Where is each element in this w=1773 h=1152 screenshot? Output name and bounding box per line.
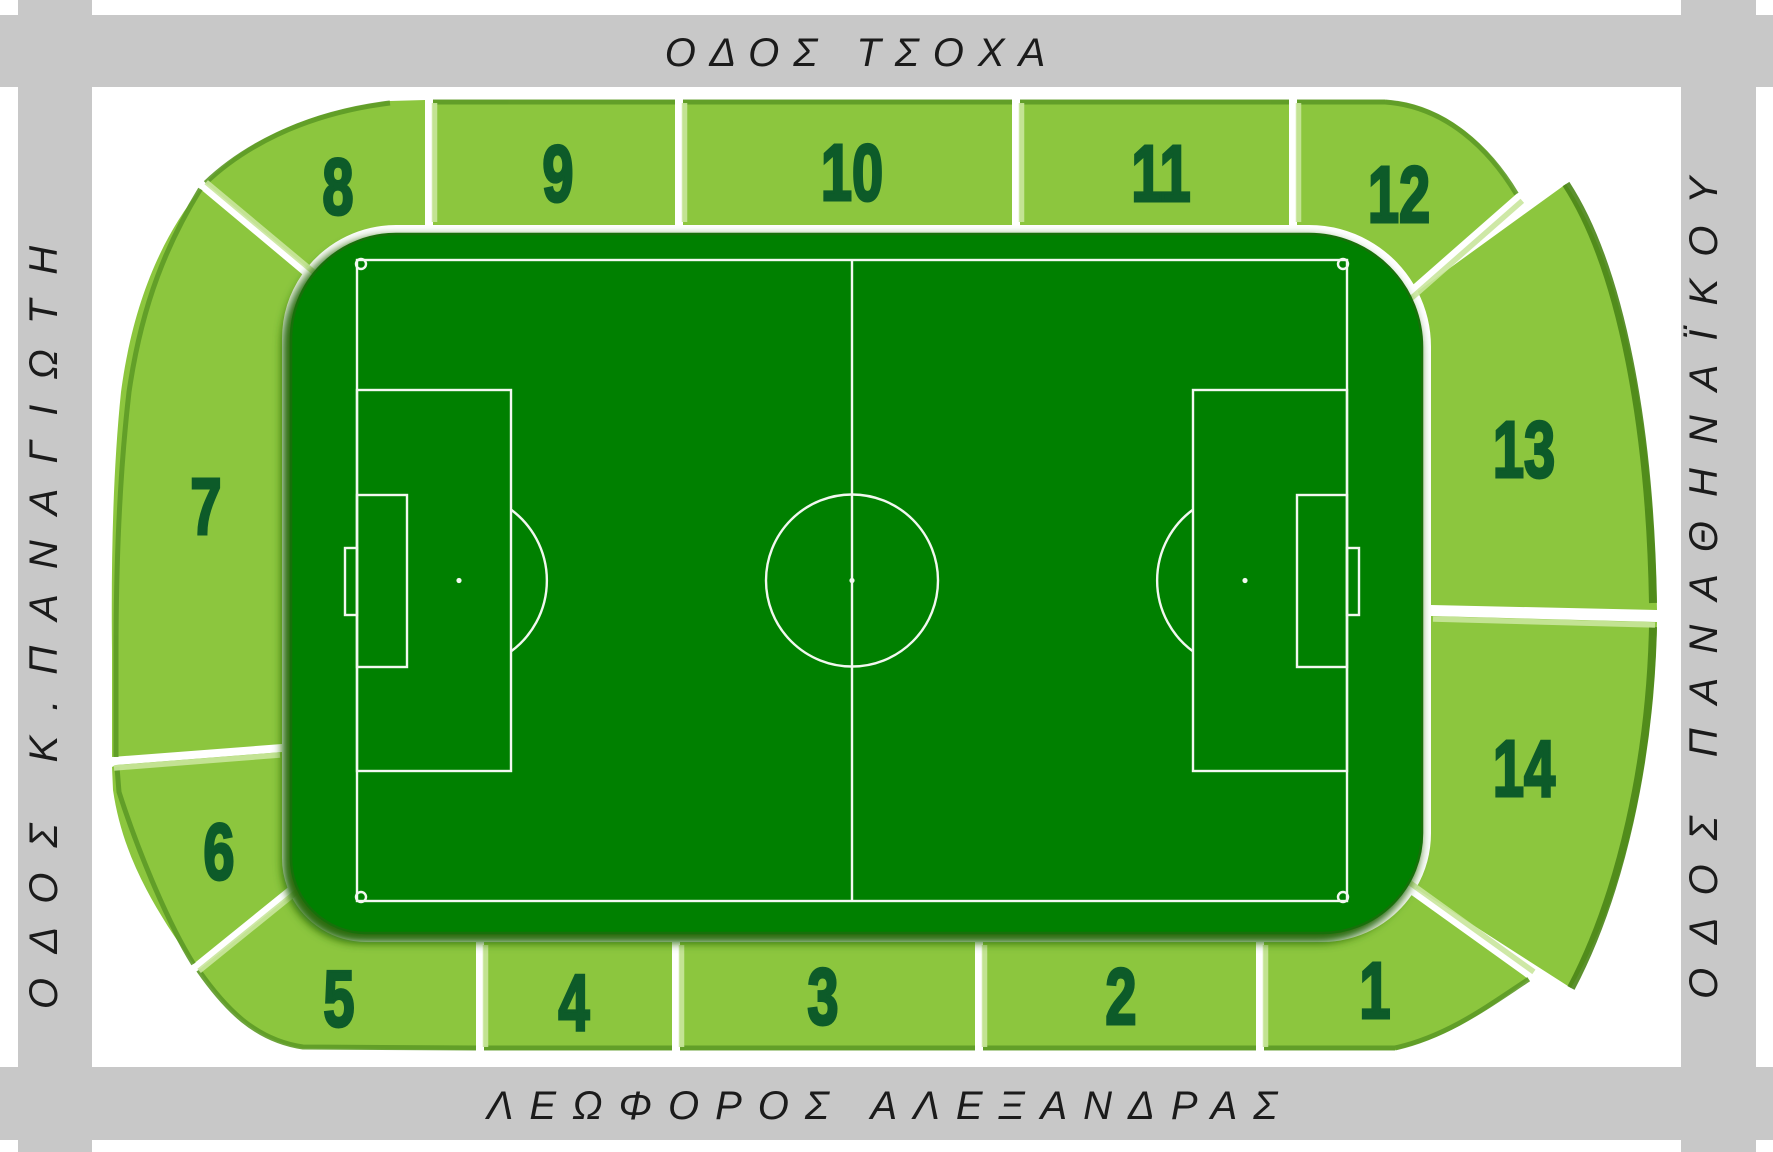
svg-text:1: 1 [1359, 945, 1390, 1035]
svg-text:14: 14 [1493, 723, 1556, 813]
svg-text:4: 4 [558, 957, 590, 1047]
svg-text:13: 13 [1493, 404, 1555, 494]
svg-text:ΟΔΟΣ ΤΣΟΧΑ: ΟΔΟΣ ΤΣΟΧΑ [665, 31, 1060, 75]
svg-text:10: 10 [821, 127, 883, 217]
svg-text:ΟΔΟΣ Κ.ΠΑΝΑΓΙΩΤΗ: ΟΔΟΣ Κ.ΠΑΝΑΓΙΩΤΗ [22, 221, 66, 1009]
svg-text:8: 8 [322, 141, 353, 231]
svg-text:3: 3 [807, 951, 838, 1041]
svg-text:11: 11 [1131, 128, 1190, 218]
svg-text:2: 2 [1105, 951, 1136, 1041]
svg-text:12: 12 [1368, 149, 1430, 239]
svg-text:ΟΔΟΣ ΠΑΝΑΘΗΝΑΪΚΟΥ: ΟΔΟΣ ΠΑΝΑΘΗΝΑΪΚΟΥ [1682, 153, 1726, 999]
svg-text:7: 7 [190, 461, 221, 551]
svg-text:5: 5 [323, 953, 354, 1043]
svg-text:ΛΕΩΦΟΡΟΣ ΑΛΕΞΑΝΔΡΑΣ: ΛΕΩΦΟΡΟΣ ΑΛΕΞΑΝΔΡΑΣ [485, 1084, 1294, 1128]
svg-text:9: 9 [542, 128, 573, 218]
svg-text:6: 6 [203, 806, 234, 896]
